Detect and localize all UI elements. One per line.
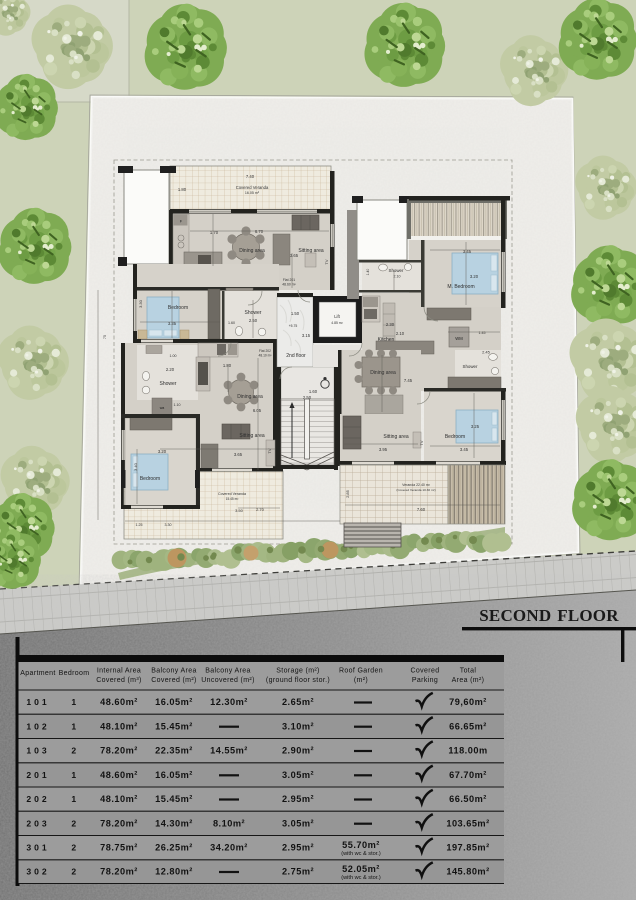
svg-text:Covered Veranda: Covered Veranda [236,185,269,190]
svg-text:SECOND FLOOR: SECOND FLOOR [479,606,619,625]
svg-text:3.65: 3.65 [290,253,299,258]
svg-text:(ground floor stor.): (ground floor stor.) [266,677,330,684]
svg-text:2nd floor: 2nd floor [286,353,306,359]
svg-text:2.65m²: 2.65m² [282,697,314,707]
svg-text:Total: Total [460,668,477,675]
svg-text:Uncovered (m²): Uncovered (m²) [201,677,255,684]
svg-text:3.20: 3.20 [158,449,167,454]
svg-text:2: 2 [71,867,76,877]
svg-text:12.30m²: 12.30m² [210,697,248,707]
svg-text:16.05m²: 16.05m² [155,697,193,707]
svg-text:48.10m²: 48.10m² [100,721,138,731]
svg-text:26.25m²: 26.25m² [155,843,193,853]
svg-text:+5.75: +5.75 [289,324,298,328]
svg-text:6.05: 6.05 [253,408,262,413]
svg-text:Sitting area: Sitting area [383,434,409,440]
svg-text:101: 101 [26,697,49,707]
svg-text:1: 1 [71,721,76,731]
svg-text:3.10m²: 3.10m² [282,721,314,731]
svg-text:15.45m²: 15.45m² [155,794,193,804]
svg-text:2.20: 2.20 [166,367,175,372]
svg-text:3.15: 3.15 [302,333,311,338]
svg-text:Bedroom: Bedroom [59,670,90,677]
svg-text:52.05m²: 52.05m² [342,864,380,874]
svg-text:Balcony Area: Balcony Area [205,668,250,675]
svg-text:2.90m²: 2.90m² [282,746,314,756]
svg-text:Internal Area: Internal Area [97,668,141,675]
svg-text:2.50: 2.50 [249,318,258,323]
svg-text:Dining area: Dining area [370,370,396,376]
svg-text:3.05m²: 3.05m² [282,770,314,780]
svg-text:78.20m²: 78.20m² [100,867,138,877]
svg-text:(with wc & stor.): (with wc & stor.) [341,851,381,857]
svg-text:2.95m²: 2.95m² [282,843,314,853]
svg-text:Area (m²): Area (m²) [452,677,485,684]
svg-text:3.65: 3.65 [234,452,243,457]
svg-text:M. Bedroom: M. Bedroom [447,284,474,290]
svg-text:1.60: 1.60 [228,321,235,325]
svg-text:Shower: Shower [160,381,177,387]
svg-text:22.35m²: 22.35m² [155,746,193,756]
svg-text:14.55m²: 14.55m² [210,746,248,756]
svg-text:1.80: 1.80 [178,187,187,192]
svg-text:WM: WM [455,336,463,341]
svg-text:3.45: 3.45 [460,447,469,452]
svg-text:66.65m²: 66.65m² [449,721,487,731]
svg-text:1.25: 1.25 [136,523,143,527]
svg-text:34.20m²: 34.20m² [210,843,248,853]
svg-text:1: 1 [71,794,76,804]
svg-text:2.45: 2.45 [482,350,491,355]
svg-text:301: 301 [26,843,49,853]
svg-text:78.20m²: 78.20m² [100,746,138,756]
svg-text:Roof Garden: Roof Garden [339,668,383,675]
svg-text:145.80m²: 145.80m² [446,867,489,877]
svg-text:Flat 201: Flat 201 [283,278,295,282]
svg-text:67.70m²: 67.70m² [449,770,487,780]
svg-text:3.25: 3.25 [471,424,480,429]
svg-text:118.00m: 118.00m [448,746,487,756]
svg-text:201: 201 [26,770,49,780]
svg-text:203: 203 [26,818,49,828]
svg-text:2: 2 [71,746,76,756]
svg-text:Lift: Lift [334,314,340,319]
svg-text:8.10m²: 8.10m² [213,818,245,828]
svg-text:15.45 m²: 15.45 m² [226,497,239,501]
svg-text:15.45m²: 15.45m² [155,721,193,731]
svg-text:48.60 m²: 48.60 m² [282,283,296,287]
svg-text:3.50: 3.50 [235,508,244,513]
svg-text:1.10: 1.10 [174,403,181,407]
svg-text:3.20: 3.20 [470,274,479,279]
svg-text:3.95: 3.95 [379,447,388,452]
svg-text:Storage (m²): Storage (m²) [276,668,320,675]
svg-text:2.10: 2.10 [394,275,401,279]
svg-text:Apartment: Apartment [20,670,55,677]
svg-text:2: 2 [71,818,76,828]
svg-text:1.00: 1.00 [170,354,177,358]
svg-text:3.30: 3.30 [138,299,143,308]
svg-text:6.70: 6.70 [255,229,264,234]
svg-text:Parking: Parking [412,677,438,684]
svg-text:(m²): (m²) [354,677,368,684]
svg-text:(Covered Veranda 10.30 m²): (Covered Veranda 10.30 m²) [396,488,435,492]
svg-text:1.50: 1.50 [291,311,300,316]
svg-text:2.10: 2.10 [396,331,405,336]
svg-text:Sitting area: Sitting area [239,433,265,439]
svg-text:1.40: 1.40 [366,269,370,276]
svg-text:2: 2 [71,843,76,853]
svg-text:1.45: 1.45 [479,331,486,335]
svg-text:7.45: 7.45 [404,378,413,383]
svg-text:2.75m²: 2.75m² [282,867,314,877]
svg-text:55.70m²: 55.70m² [342,840,380,850]
svg-text:3.40: 3.40 [133,462,138,471]
svg-text:2.70: 2.70 [256,507,265,512]
svg-text:75: 75 [103,335,107,339]
svg-text:66.50m²: 66.50m² [449,794,487,804]
svg-text:Covered Veranda: Covered Veranda [218,492,246,496]
svg-text:Covered: Covered [411,668,440,675]
svg-text:48.10m²: 48.10m² [100,794,138,804]
svg-text:14.30m²: 14.30m² [155,818,193,828]
svg-text:1.60: 1.60 [309,389,318,394]
svg-text:48.60m²: 48.60m² [100,697,138,707]
svg-text:3.05m²: 3.05m² [282,818,314,828]
svg-text:78.75m²: 78.75m² [100,843,138,853]
svg-text:12.80m²: 12.80m² [155,867,193,877]
svg-text:Covered (m²): Covered (m²) [151,677,196,684]
svg-text:Shower: Shower [389,268,404,273]
svg-text:1: 1 [71,697,76,707]
svg-text:79,60m²: 79,60m² [449,697,487,707]
svg-text:103.65m²: 103.65m² [446,818,489,828]
svg-text:TV: TV [419,440,424,445]
svg-text:103: 103 [26,746,49,756]
svg-text:202: 202 [26,794,49,804]
svg-text:Bedroom: Bedroom [168,305,188,311]
svg-text:302: 302 [26,867,49,877]
svg-text:Shower: Shower [463,364,478,369]
svg-text:2.30: 2.30 [386,322,395,327]
svg-text:3.30: 3.30 [165,523,172,527]
svg-text:1.70: 1.70 [210,230,219,235]
svg-text:2.95m²: 2.95m² [282,794,314,804]
svg-text:48.60m²: 48.60m² [100,770,138,780]
svg-text:7.60: 7.60 [417,507,426,512]
svg-text:4.85 m²: 4.85 m² [331,321,343,325]
svg-text:48.10 m²: 48.10 m² [258,354,272,358]
svg-text:78.20m²: 78.20m² [100,818,138,828]
svg-text:Veranda 22.40 m²: Veranda 22.40 m² [402,483,431,487]
svg-text:1.80: 1.80 [223,363,232,368]
svg-text:3.35: 3.35 [168,321,177,326]
svg-text:Balcony Area: Balcony Area [151,668,196,675]
svg-text:16.05 m²: 16.05 m² [245,191,260,195]
svg-text:102: 102 [26,721,49,731]
svg-text:16.05m²: 16.05m² [155,770,193,780]
svg-text:2.85: 2.85 [345,489,350,498]
svg-text:wa: wa [160,406,165,410]
svg-text:Bedroom: Bedroom [140,476,160,482]
svg-text:197.85m²: 197.85m² [446,843,489,853]
svg-text:Covered (m³): Covered (m³) [96,677,141,684]
svg-text:Flat 202: Flat 202 [259,349,271,353]
svg-text:Bedroom: Bedroom [445,434,465,440]
svg-text:Dining area: Dining area [239,248,265,254]
svg-text:7.40: 7.40 [246,174,255,179]
svg-text:Dining area: Dining area [237,394,263,400]
svg-text:TV: TV [324,259,329,264]
svg-text:1: 1 [71,770,76,780]
svg-text:3.45: 3.45 [463,249,472,254]
svg-text:(with wc & stor.): (with wc & stor.) [341,875,381,881]
